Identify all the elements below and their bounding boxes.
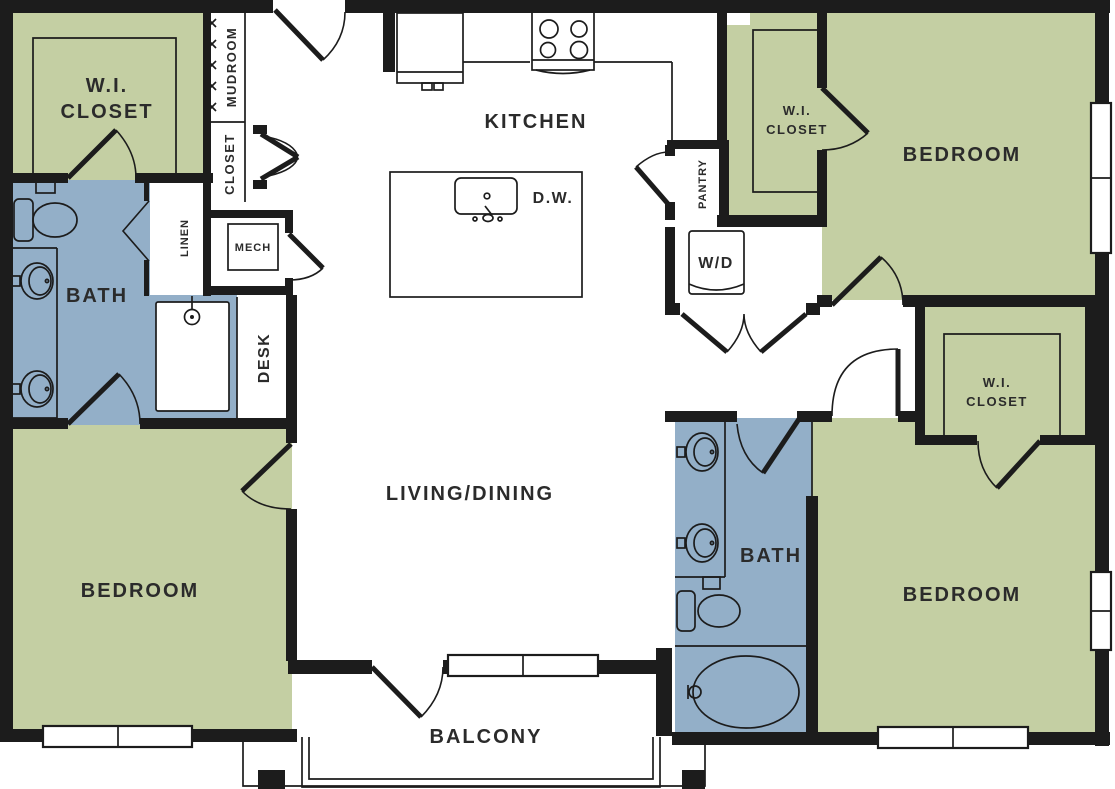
label-wi-closet-tr2: CLOSET	[766, 122, 828, 137]
stove-icon	[532, 12, 594, 74]
floor-plan-svg: W.I. CLOSET MUDROOM CLOSET LINEN MECH BA…	[0, 0, 1115, 789]
entry-closet-doors	[261, 134, 298, 179]
window	[1091, 572, 1111, 650]
label-entry-closet: CLOSET	[222, 133, 237, 195]
label-kitchen: KITCHEN	[485, 111, 588, 133]
label-wi-closet-tl: W.I.	[86, 75, 128, 97]
label-desk: DESK	[256, 333, 273, 383]
label-dishwasher: D.W.	[533, 190, 574, 207]
balcony-post	[258, 770, 285, 789]
entry-door	[275, 10, 345, 60]
label-mudroom: MUDROOM	[224, 27, 239, 108]
label-wi-closet-mr2: CLOSET	[966, 394, 1028, 409]
label-bedroom-tr: BEDROOM	[903, 144, 1021, 166]
laundry-double-doors	[682, 314, 806, 352]
label-bath-master: BATH	[66, 285, 128, 307]
label-bedroom-bl: BEDROOM	[81, 580, 199, 602]
shower-icon	[156, 296, 229, 411]
window	[878, 727, 1028, 748]
balcony-door	[372, 667, 443, 717]
bedroom-br-door	[832, 349, 898, 416]
refrigerator-icon	[397, 13, 463, 90]
label-wi-closet-tl2: CLOSET	[60, 101, 153, 123]
window	[43, 726, 192, 747]
label-wi-closet-tr: W.I.	[783, 103, 811, 118]
label-linen: LINEN	[179, 219, 191, 257]
mech-door	[289, 234, 323, 280]
balcony-post	[682, 770, 705, 789]
pantry-door	[636, 152, 669, 205]
label-balcony: BALCONY	[430, 726, 543, 748]
label-wi-closet-mr: W.I.	[983, 375, 1011, 390]
label-mech: MECH	[235, 242, 271, 254]
room-bedroom-bottom-right	[812, 418, 1100, 736]
floor-plan: W.I. CLOSET MUDROOM CLOSET LINEN MECH BA…	[0, 0, 1115, 789]
label-bath-second: BATH	[740, 545, 802, 567]
window	[1091, 103, 1111, 253]
window	[448, 655, 598, 676]
label-pantry: PANTRY	[697, 159, 709, 209]
label-living-dining: LIVING/DINING	[386, 483, 554, 505]
label-washer-dryer: W/D	[698, 255, 734, 272]
label-bedroom-br: BEDROOM	[903, 584, 1021, 606]
